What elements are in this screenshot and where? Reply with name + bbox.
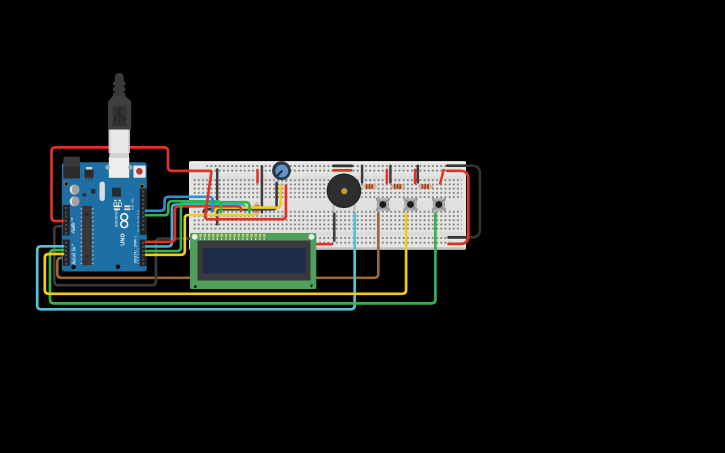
svg-text:AREF GND: AREF GND [132,198,135,210]
svg-text:7 6 5 4 3 2: 7 6 5 4 3 2 [137,248,140,264]
svg-text:5V GND VIN: 5V GND VIN [71,217,74,232]
svg-text:UNO: UNO [120,233,126,245]
svg-text:13 12 11 10 9 8: 13 12 11 10 9 8 [137,210,140,232]
svg-text:ARDUINO: ARDUINO [115,210,119,227]
svg-text:A0 A1 A2 A3 A4: A0 A1 A2 A3 A4 [71,243,74,264]
